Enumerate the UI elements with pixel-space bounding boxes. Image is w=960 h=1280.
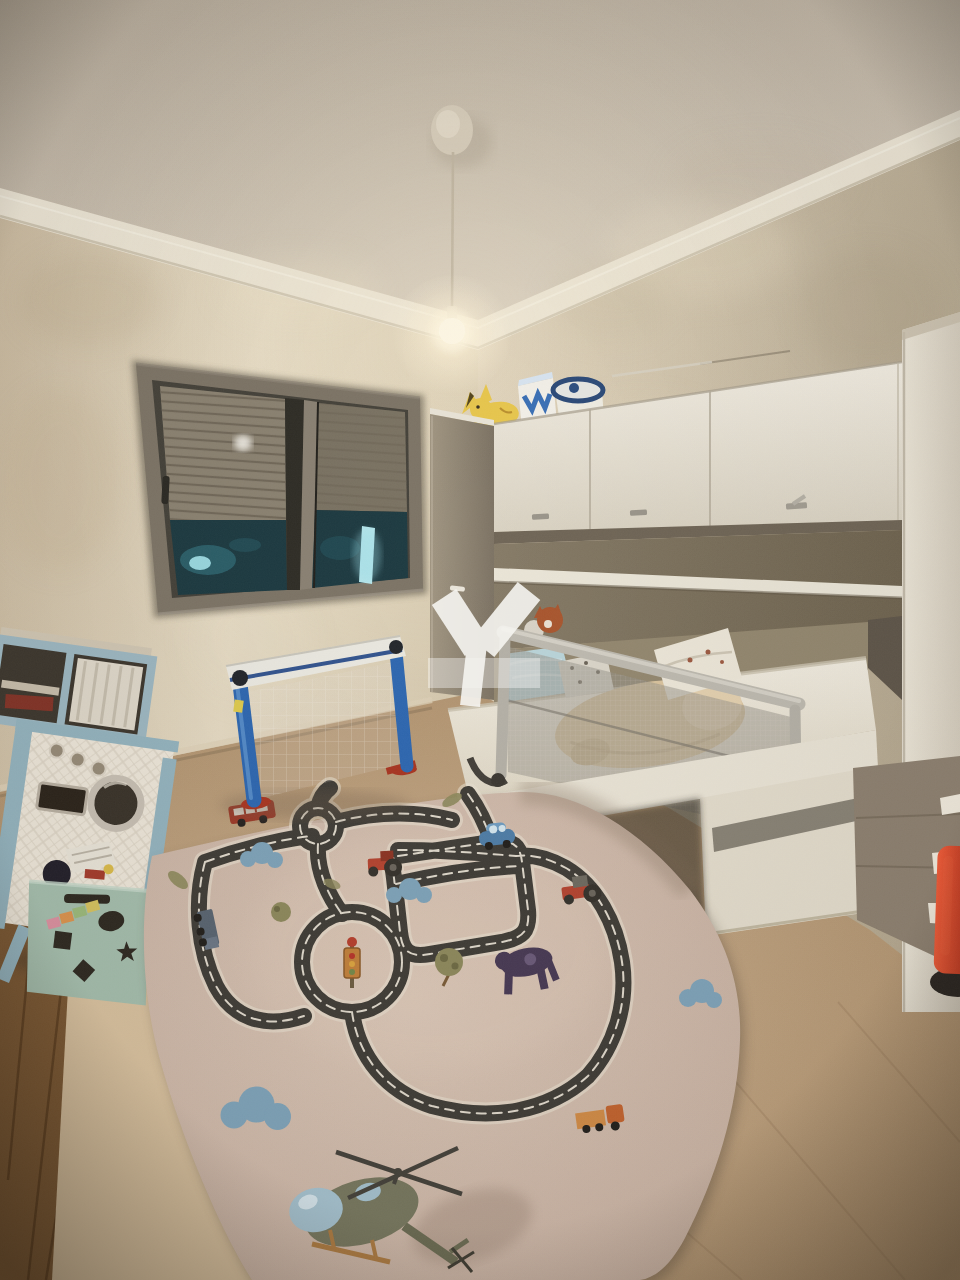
room-photo: innd xyxy=(0,0,960,1280)
bedroom-scene: innd xyxy=(0,0,960,1280)
